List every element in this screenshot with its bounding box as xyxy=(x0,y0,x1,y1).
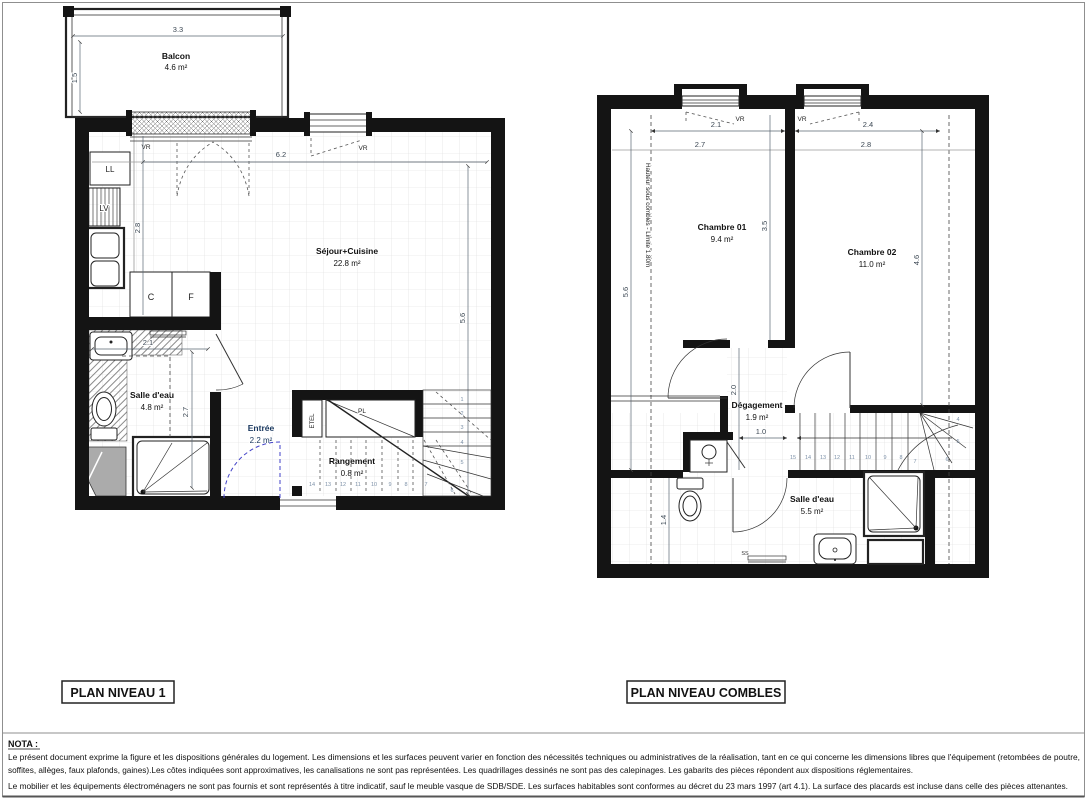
stair-step-number: 1 xyxy=(460,397,463,403)
dim-degagement-w: 1.0 xyxy=(756,427,766,436)
room-area-entree: 2.2 m² xyxy=(250,436,273,445)
room-area-balcon: 4.6 m² xyxy=(165,63,188,72)
stair-step-number: 12 xyxy=(340,482,346,488)
dim-ch1-width: 2.7 xyxy=(695,140,705,149)
room-label-salle-eau-1: Salle d'eau xyxy=(130,390,174,400)
water-heater-icon xyxy=(702,445,716,459)
stair-step-number: 14 xyxy=(309,482,315,488)
stair-step-number: 12 xyxy=(834,455,840,461)
stair-step-number: 10 xyxy=(865,455,871,461)
nota-line-1: Le présent document exprime la figure et… xyxy=(8,752,1080,762)
room-label-sejour: Séjour+Cuisine xyxy=(316,246,378,256)
stair-step-number: 5 xyxy=(460,460,463,466)
floor-plan-sheet: 3.3 1.5 Balcon 4.6 m² LL LV C F xyxy=(0,0,1087,800)
stair-step-number: 9 xyxy=(883,455,886,461)
dim-ch2-width: 2.8 xyxy=(861,140,871,149)
plan2-title-box: PLAN NIVEAU COMBLES xyxy=(627,681,785,703)
chambre2-door xyxy=(794,352,850,408)
toilet-icon xyxy=(677,478,703,489)
room-area-salle-eau-1: 4.8 m² xyxy=(141,403,164,412)
nota-line-3: Le mobilier et les équipements électromé… xyxy=(8,781,1068,791)
dim-ch1-height: 3.5 xyxy=(760,221,769,231)
stair-step-number: 15 xyxy=(790,455,796,461)
stair-step-number: 4 xyxy=(460,440,463,446)
stair-step-number: 11 xyxy=(355,482,361,488)
dim-sejour-height: 5.6 xyxy=(458,313,467,323)
stair-step-number: 10 xyxy=(371,482,377,488)
dishwasher-label: LV xyxy=(99,204,109,213)
plan-niveau-combles: VR VR Hauteur sous combles - Limite 1.80… xyxy=(597,84,989,578)
stair-step-number: 5 xyxy=(956,439,959,445)
vr-label-dormer1: VR xyxy=(735,116,744,123)
stair-step-number: 11 xyxy=(849,455,855,461)
room-area-chambre2: 11.0 m² xyxy=(859,260,886,269)
dim-sejour-width: 6.2 xyxy=(276,150,286,159)
plan-niveau-1: 3.3 1.5 Balcon 4.6 m² LL LV C F xyxy=(63,6,505,510)
stair-step-number: 9 xyxy=(388,482,391,488)
stair-step-number: 7 xyxy=(424,482,427,488)
stair-step-number: 8 xyxy=(899,455,902,461)
shower-ledge xyxy=(868,540,923,564)
dim-left-height: 5.6 xyxy=(621,287,630,297)
closet-c-label: C xyxy=(148,292,155,302)
room-label-chambre2: Chambre 02 xyxy=(848,247,897,257)
plan1-title: PLAN NIVEAU 1 xyxy=(70,686,165,700)
room-area-salle-eau-2: 5.5 m² xyxy=(801,507,824,516)
dim-ch2-top: 2.4 xyxy=(863,120,873,129)
pl-label: PL xyxy=(358,408,366,415)
floor-plan-drawing: 3.3 1.5 Balcon 4.6 m² LL LV C F xyxy=(0,0,1087,800)
nota-line-2: soffites, allèges, faux plafonds, gaines… xyxy=(8,765,913,775)
balcony: 3.3 1.5 Balcon 4.6 m² xyxy=(63,6,291,117)
dim-ch1-top: 2.1 xyxy=(711,120,721,129)
room-label-salle-eau-2: Salle d'eau xyxy=(790,494,834,504)
room-area-degagement: 1.9 m² xyxy=(746,413,769,422)
vr-label-dormer2: VR xyxy=(797,116,806,123)
stair-step-number: 8 xyxy=(404,482,407,488)
plan2-title: PLAN NIVEAU COMBLES xyxy=(631,686,782,700)
dim-kitchen-height: 2.8 xyxy=(133,223,142,233)
stair-step-number: 4 xyxy=(956,417,959,423)
dim-ch2-height: 4.6 xyxy=(912,255,921,265)
stair-step-number: 14 xyxy=(805,455,811,461)
dim-sde-height: 2.7 xyxy=(181,407,190,417)
stair-step-number: 6 xyxy=(945,457,948,463)
toilet-icon xyxy=(91,428,117,440)
dim-sde-width: 2.1 xyxy=(143,338,153,347)
room-area-sejour: 22.8 m² xyxy=(333,259,360,268)
stair-step-number: 13 xyxy=(820,455,826,461)
dim-balcon-height: 1.5 xyxy=(70,73,79,83)
room-area-rangement: 0.8 m² xyxy=(341,469,364,478)
room-label-balcon: Balcon xyxy=(162,51,190,61)
stair-step-number: 7 xyxy=(913,459,916,465)
nota-heading: NOTA : xyxy=(8,739,38,749)
dim-degagement-h: 2.0 xyxy=(729,385,738,395)
room-label-chambre1: Chambre 01 xyxy=(698,222,747,232)
towel-radiator-label: SS xyxy=(741,551,749,557)
plan1-title-box: PLAN NIVEAU 1 xyxy=(62,681,174,703)
closet-f-label: F xyxy=(188,292,194,302)
nota-section: NOTA : Le présent document exprime la fi… xyxy=(8,739,1080,791)
room-label-entree: Entrée xyxy=(248,423,275,433)
stair-step-number: 3 xyxy=(460,425,463,431)
washing-machine-label: LL xyxy=(106,165,115,174)
height-limit-note: Hauteur sous combles - Limite 1.80m xyxy=(644,163,651,267)
dim-balcon-width: 3.3 xyxy=(173,25,183,34)
stair-step-number: 6 xyxy=(450,488,453,494)
room-area-chambre1: 9.4 m² xyxy=(711,235,734,244)
dormer-window-2 xyxy=(796,84,869,124)
stair-step-number: 13 xyxy=(325,482,331,488)
stair-step-number: 2 xyxy=(460,411,463,417)
etel-label: ETEL xyxy=(310,413,316,429)
vr-label-2: VR xyxy=(358,145,367,152)
dim-wc-height: 1.4 xyxy=(659,515,668,525)
